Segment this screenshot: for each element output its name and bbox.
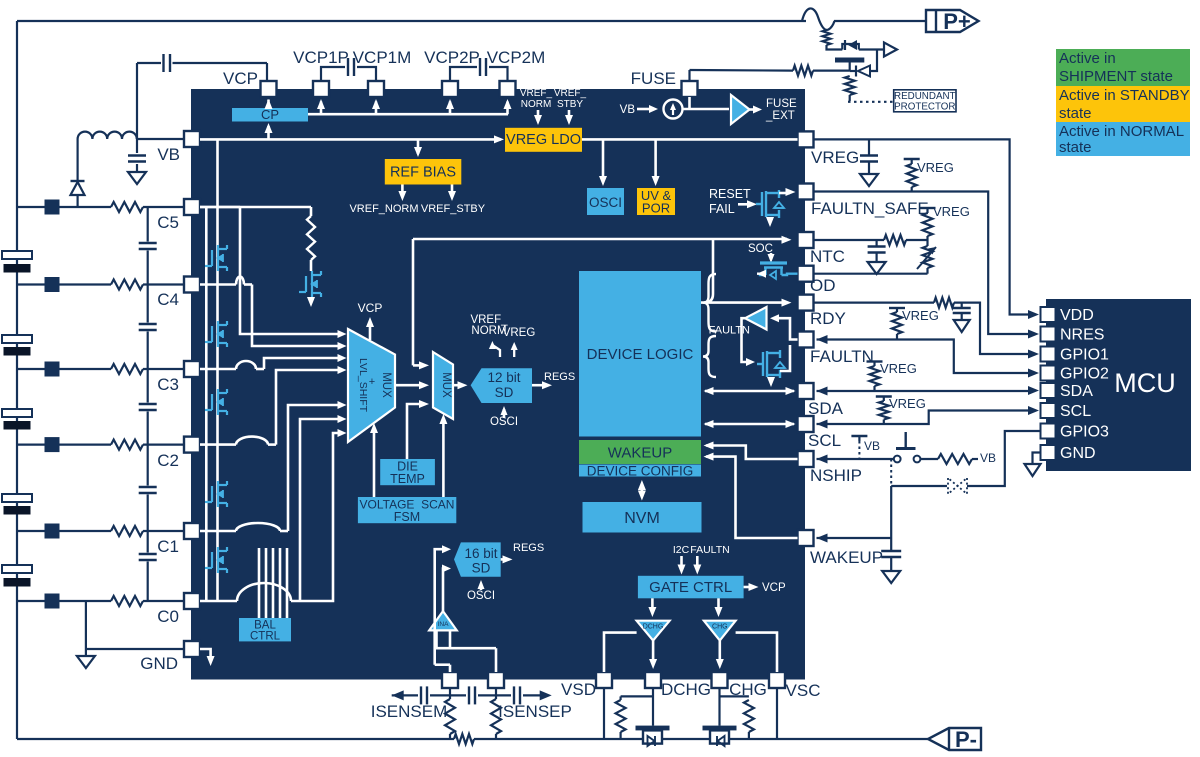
svg-text:Active in NORMAL: Active in NORMAL xyxy=(1059,123,1184,140)
svg-text:Active in STANDBY: Active in STANDBY xyxy=(1059,87,1190,104)
svg-text:REGS: REGS xyxy=(513,542,544,554)
svg-text:P-: P- xyxy=(955,727,977,752)
svg-text:STBY: STBY xyxy=(557,99,583,110)
svg-text:LVL_SHIFT: LVL_SHIFT xyxy=(357,358,369,413)
svg-text:VREG: VREG xyxy=(902,308,939,323)
svg-text:VB: VB xyxy=(864,439,880,453)
svg-text:MCU: MCU xyxy=(1114,368,1176,398)
svg-text:VREG: VREG xyxy=(933,204,970,219)
svg-text:OSCI: OSCI xyxy=(467,590,495,602)
svg-text:VREG: VREG xyxy=(917,160,954,175)
svg-text:state: state xyxy=(1059,105,1092,122)
svg-text:VREG LDO: VREG LDO xyxy=(506,132,581,148)
svg-text:+: + xyxy=(369,376,375,388)
svg-text:12 bit: 12 bit xyxy=(487,370,520,385)
svg-text:ISENSEM: ISENSEM xyxy=(371,702,448,721)
svg-text:C1: C1 xyxy=(157,537,179,556)
svg-text:DEVICE CONFIG: DEVICE CONFIG xyxy=(587,464,694,479)
svg-text:SCL: SCL xyxy=(808,431,841,450)
svg-text:VREG: VREG xyxy=(880,361,917,376)
svg-text:FUSE: FUSE xyxy=(766,98,797,110)
svg-text:FAULTN_SAFE: FAULTN_SAFE xyxy=(811,199,929,218)
svg-text:VCP: VCP xyxy=(762,582,786,594)
svg-text:FAIL: FAIL xyxy=(709,202,735,216)
svg-text:GATE CTRL: GATE CTRL xyxy=(649,579,732,596)
svg-text:NORM: NORM xyxy=(521,99,552,110)
svg-text:VCP2P: VCP2P xyxy=(424,48,480,67)
svg-text:VCP: VCP xyxy=(358,301,383,315)
svg-text:C4: C4 xyxy=(157,290,179,309)
svg-text:VCP1M: VCP1M xyxy=(353,48,412,67)
svg-text:RESET: RESET xyxy=(709,187,751,201)
svg-text:VCP: VCP xyxy=(223,69,258,88)
svg-text:GND: GND xyxy=(1060,445,1096,462)
svg-text:NSHIP: NSHIP xyxy=(810,466,862,485)
svg-text:SOC: SOC xyxy=(748,243,773,255)
svg-text:SDA: SDA xyxy=(808,399,844,418)
svg-text:MUX: MUX xyxy=(380,372,392,398)
svg-text:FAULTN: FAULTN xyxy=(810,347,874,366)
svg-text:WAKEUP: WAKEUP xyxy=(608,445,672,462)
svg-text:FAULTN: FAULTN xyxy=(690,544,729,556)
svg-text:WAKEUP: WAKEUP xyxy=(810,548,883,567)
svg-text:SCL: SCL xyxy=(1060,403,1091,420)
svg-text:C5: C5 xyxy=(157,213,179,232)
svg-text:VREG: VREG xyxy=(889,396,926,411)
svg-text:INA: INA xyxy=(438,621,450,628)
svg-text:DEVICE LOGIC: DEVICE LOGIC xyxy=(587,346,694,363)
svg-text:VSC: VSC xyxy=(786,681,821,700)
svg-text:VB: VB xyxy=(157,145,180,164)
svg-text:DCHG: DCHG xyxy=(643,624,664,631)
svg-text:NVM: NVM xyxy=(624,510,660,527)
svg-text:VCP1P: VCP1P xyxy=(293,48,349,67)
svg-text:C2: C2 xyxy=(157,451,179,470)
svg-text:REDUNDANT: REDUNDANT xyxy=(894,91,956,102)
svg-text:VCP2M: VCP2M xyxy=(487,48,546,67)
svg-text:NTC: NTC xyxy=(810,247,845,266)
svg-text:GPIO1: GPIO1 xyxy=(1060,347,1109,364)
svg-text:VREG: VREG xyxy=(811,148,859,167)
svg-text:DCHG: DCHG xyxy=(661,680,711,699)
svg-text:VSD: VSD xyxy=(561,680,596,699)
svg-text:OD: OD xyxy=(810,276,836,295)
svg-text:P+: P+ xyxy=(943,9,971,34)
svg-text:_EXT: _EXT xyxy=(765,110,795,122)
svg-text:OSCI: OSCI xyxy=(589,195,622,210)
svg-text:VREF_: VREF_ xyxy=(520,88,553,99)
svg-text:GND: GND xyxy=(140,654,178,673)
svg-text:GPIO3: GPIO3 xyxy=(1060,424,1109,441)
svg-text:CHG: CHG xyxy=(729,680,767,699)
svg-text:state: state xyxy=(1059,139,1092,156)
svg-text:RDY: RDY xyxy=(810,309,846,328)
svg-text:VREF_STBY: VREF_STBY xyxy=(421,203,486,215)
svg-text:FAULTN: FAULTN xyxy=(709,325,750,337)
svg-text:CHG: CHG xyxy=(712,624,728,631)
svg-text:VREF_: VREF_ xyxy=(554,88,587,99)
svg-text:VB: VB xyxy=(980,451,996,465)
svg-text:C3: C3 xyxy=(157,375,179,394)
svg-text:VDD: VDD xyxy=(1060,307,1094,324)
svg-text:VREF_NORM: VREF_NORM xyxy=(349,203,418,215)
svg-text:FUSE: FUSE xyxy=(631,69,676,88)
svg-text:NORM: NORM xyxy=(471,325,506,337)
svg-text:PROTECTOR: PROTECTOR xyxy=(894,102,955,113)
svg-text:SDA: SDA xyxy=(1060,383,1093,400)
svg-text:FSM: FSM xyxy=(394,510,420,524)
svg-text:VB: VB xyxy=(620,104,636,116)
svg-text:CTRL: CTRL xyxy=(250,631,281,643)
svg-text:TEMP: TEMP xyxy=(390,472,425,486)
svg-text:Active in: Active in xyxy=(1059,50,1116,67)
svg-text:ISENSEP: ISENSEP xyxy=(498,702,572,721)
svg-text:CP: CP xyxy=(261,107,279,122)
svg-text:VREG: VREG xyxy=(503,327,536,339)
svg-text:GPIO2: GPIO2 xyxy=(1060,366,1109,383)
svg-text:MUX: MUX xyxy=(440,372,452,398)
svg-text:REF BIAS: REF BIAS xyxy=(390,165,456,181)
svg-text:POR: POR xyxy=(642,201,670,216)
svg-text:C0: C0 xyxy=(157,607,179,626)
svg-text:I2C: I2C xyxy=(673,544,690,556)
svg-text:16 bit: 16 bit xyxy=(464,546,497,561)
svg-text:SD: SD xyxy=(472,561,491,576)
svg-text:SD: SD xyxy=(495,385,514,400)
svg-text:REGS: REGS xyxy=(544,371,575,383)
svg-text:NRES: NRES xyxy=(1060,327,1104,344)
svg-text:SHIPMENT state: SHIPMENT state xyxy=(1059,68,1173,85)
